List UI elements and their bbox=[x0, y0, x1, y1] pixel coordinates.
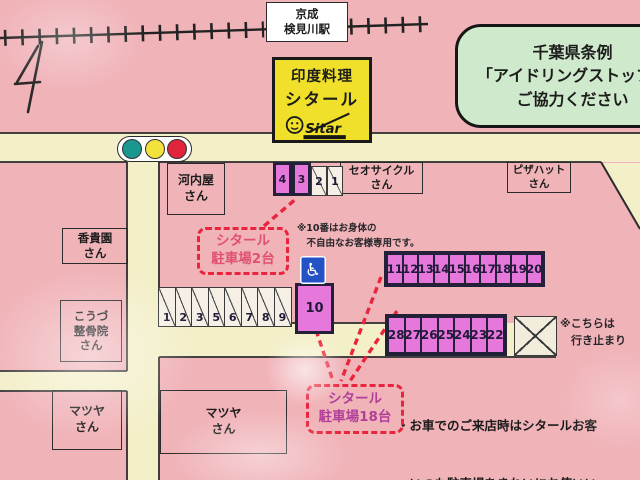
building-kouzu-seikotsuin-label: こうづ 整骨院 さん bbox=[74, 309, 109, 354]
parking-row-main: 1 2 3 5 6 7 8 9 bbox=[158, 287, 292, 327]
parking-spot-4: 4 bbox=[273, 162, 292, 196]
parking-spot-24: 24 bbox=[455, 318, 470, 352]
parking-spot-3: 3 bbox=[292, 162, 311, 196]
building-koukien-label: 香貴園 さん bbox=[78, 231, 113, 261]
parking-spot: 8 bbox=[258, 288, 275, 326]
building-kouzu-seikotsuin: こうづ 整骨院 さん bbox=[60, 300, 122, 362]
parking-spot-27: 27 bbox=[406, 318, 421, 352]
note-dead-end: ※こちらは 行き止まり bbox=[560, 316, 626, 349]
idling-sign-line2: 「アイドリングストップ」 bbox=[477, 64, 640, 87]
glare-overlay bbox=[0, 0, 170, 110]
building-kawachiya-label: 河内屋 さん bbox=[178, 173, 214, 204]
lot18-dashed-box: シタール 駐車場18台 bbox=[306, 384, 404, 434]
note-line: ・いつも駐車場をきれいにお使いい bbox=[397, 474, 597, 480]
parking-spot: 5 bbox=[209, 288, 226, 326]
parking-spot-15: 15 bbox=[450, 255, 464, 283]
parking-row-11-20: 11 12 13 14 15 16 17 18 19 20 bbox=[384, 251, 545, 287]
parking-spot-23: 23 bbox=[472, 318, 487, 352]
parking-spot-26: 26 bbox=[422, 318, 437, 352]
parking-spot-10: 10 bbox=[295, 283, 334, 334]
lot2-dashed-box: シタール 駐車場2台 bbox=[197, 227, 289, 275]
building-kawachiya: 河内屋 さん bbox=[167, 163, 225, 215]
traffic-light-icon bbox=[117, 136, 192, 162]
crossed-out-area bbox=[514, 316, 557, 356]
parking-spot-18: 18 bbox=[497, 255, 511, 283]
parking-spot-25: 25 bbox=[439, 318, 454, 352]
lot2-label: シタール 駐車場2台 bbox=[211, 233, 274, 268]
parking-spot-14: 14 bbox=[435, 255, 449, 283]
parking-spot-28: 28 bbox=[389, 318, 404, 352]
parking-spot: 6 bbox=[225, 288, 242, 326]
parking-spot: 3 bbox=[192, 288, 209, 326]
note-spot10: ※10番はお身体の 不自由なお客様専用です。 bbox=[297, 221, 420, 251]
idling-stop-sign: 千葉県条例 「アイドリングストップ」 ご協力ください bbox=[455, 24, 640, 128]
parking-spot-11: 11 bbox=[388, 255, 402, 283]
railway-line bbox=[0, 24, 428, 38]
parking-spot-2: 2 bbox=[311, 166, 327, 196]
parking-spot: 1 bbox=[159, 288, 176, 326]
route-4-mark bbox=[15, 42, 42, 112]
notes-list: ・お車でのご来店時はシタールお客 ・いつも駐車場をきれいにお使いい ・特に夜間の… bbox=[397, 377, 597, 480]
lot18-label: シタール 駐車場18台 bbox=[319, 391, 392, 426]
building-pizza-hut: ピザハット さん bbox=[507, 162, 571, 193]
parking-row-22-28: 28 27 26 25 24 23 22 bbox=[385, 314, 507, 356]
building-matsuya-right-label: マツヤ さん bbox=[205, 406, 241, 437]
building-matsuya-left: マツヤ さん bbox=[52, 390, 122, 450]
wheelchair-icon: ♿ bbox=[300, 256, 326, 284]
building-pizza-hut-label: ピザハット さん bbox=[513, 164, 566, 191]
parking-spot-12: 12 bbox=[404, 255, 418, 283]
traffic-light-yellow bbox=[145, 139, 165, 159]
parking-spot: 2 bbox=[176, 288, 193, 326]
road-diagonal-edge bbox=[601, 162, 640, 229]
station-label: 京成 検見川駅 bbox=[284, 7, 330, 37]
parking-map: 京成 検見川駅 印度料理 シタール Sitar 千葉県条例 「アイドリングストッ… bbox=[0, 0, 640, 480]
lot2-pointer-line bbox=[264, 198, 297, 226]
building-matsuya-left-label: マツヤ さん bbox=[69, 404, 105, 435]
parking-spot-20: 20 bbox=[528, 255, 542, 283]
parking-spot-16: 16 bbox=[466, 255, 480, 283]
parking-spot: 9 bbox=[275, 288, 291, 326]
restaurant-sign: 印度料理 シタール Sitar bbox=[272, 57, 372, 143]
restaurant-logo: Sitar bbox=[277, 110, 367, 140]
road-vertical bbox=[127, 162, 159, 480]
restaurant-sign-line1: 印度料理 bbox=[291, 65, 353, 86]
traffic-light-red bbox=[167, 139, 187, 159]
road-diagonal-sliver bbox=[601, 163, 640, 229]
building-matsuya-right: マツヤ さん bbox=[160, 390, 287, 454]
parking-spot-19: 19 bbox=[512, 255, 526, 283]
station-sign: 京成 検見川駅 bbox=[266, 2, 348, 42]
parking-spot-13: 13 bbox=[419, 255, 433, 283]
building-seo-cycle: セオサイクル さん bbox=[340, 162, 423, 194]
parking-spot-1: 1 bbox=[327, 166, 343, 196]
idling-sign-line1: 千葉県条例 bbox=[532, 41, 612, 64]
railway-ticks-right bbox=[350, 24, 428, 27]
parking-spot-22: 22 bbox=[488, 318, 503, 352]
restaurant-sign-line2: シタール bbox=[285, 86, 359, 110]
parking-spot: 7 bbox=[242, 288, 259, 326]
parking-spot-17: 17 bbox=[481, 255, 495, 283]
note-line: ・お車でのご来店時はシタールお客 bbox=[397, 416, 597, 435]
traffic-light-green bbox=[122, 139, 142, 159]
parking-row-front: 4 3 2 1 bbox=[273, 162, 343, 196]
wheelchair-glyph: ♿ bbox=[305, 260, 321, 281]
building-koukien: 香貴園 さん bbox=[62, 228, 128, 264]
building-seo-cycle-label: セオサイクル さん bbox=[349, 164, 414, 193]
idling-sign-line3: ご協力ください bbox=[516, 88, 628, 111]
railway-ticks-left bbox=[4, 29, 264, 38]
restaurant-logo-text: Sitar bbox=[305, 122, 342, 137]
road-left-branch bbox=[0, 371, 127, 391]
